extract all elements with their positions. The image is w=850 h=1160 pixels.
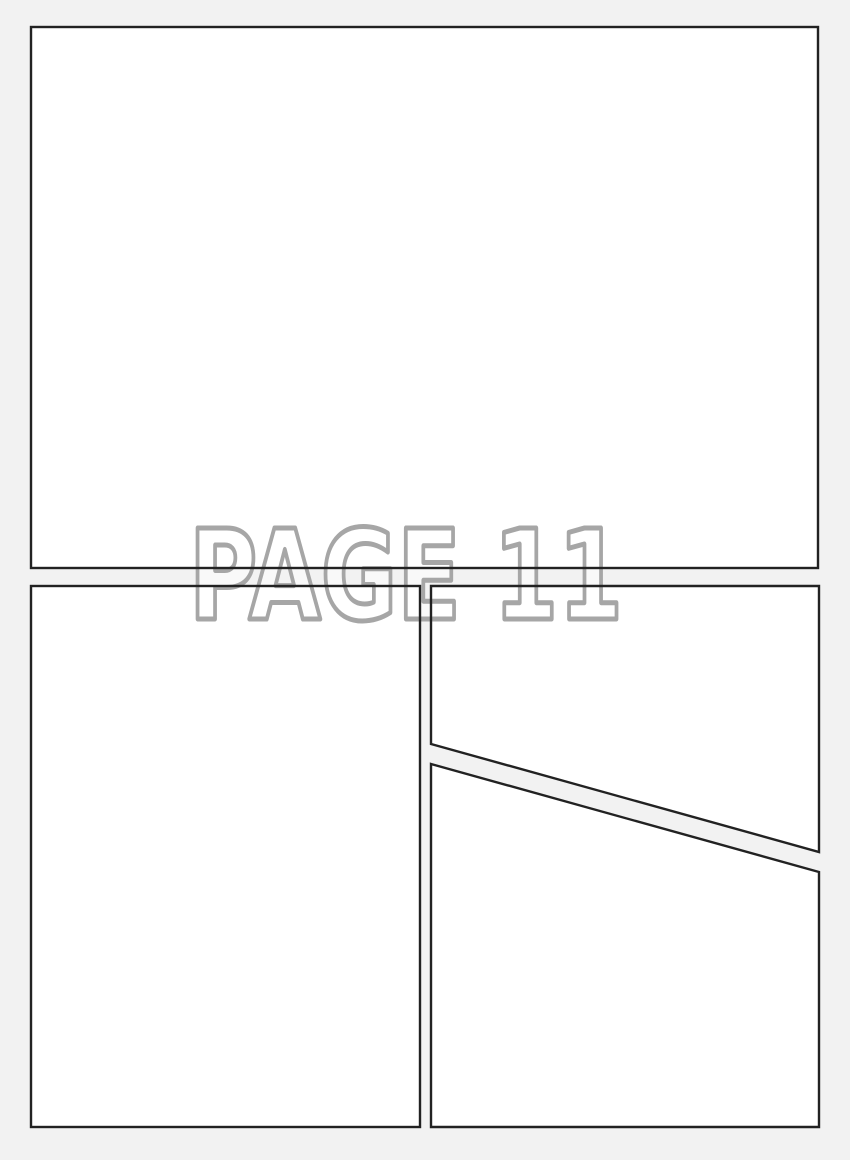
page-number-label: PAGE 11	[189, 504, 623, 649]
comic-page-template: PAGE 11	[0, 0, 850, 1160]
panel-top-fill	[31, 27, 818, 568]
panel-bottom-left-fill	[31, 586, 420, 1127]
